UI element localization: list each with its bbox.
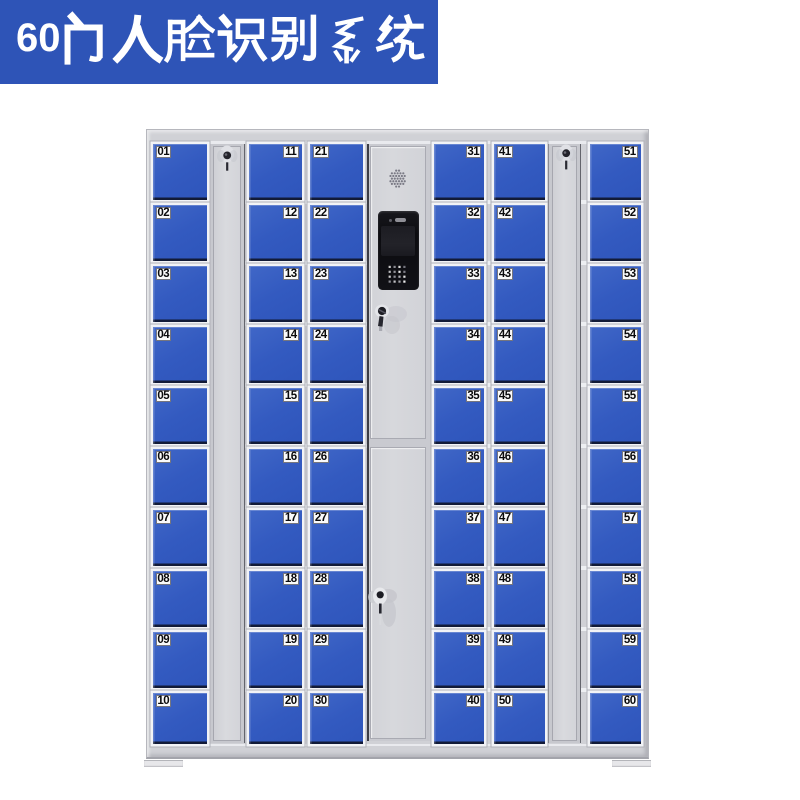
svg-text:60: 60	[16, 16, 61, 60]
